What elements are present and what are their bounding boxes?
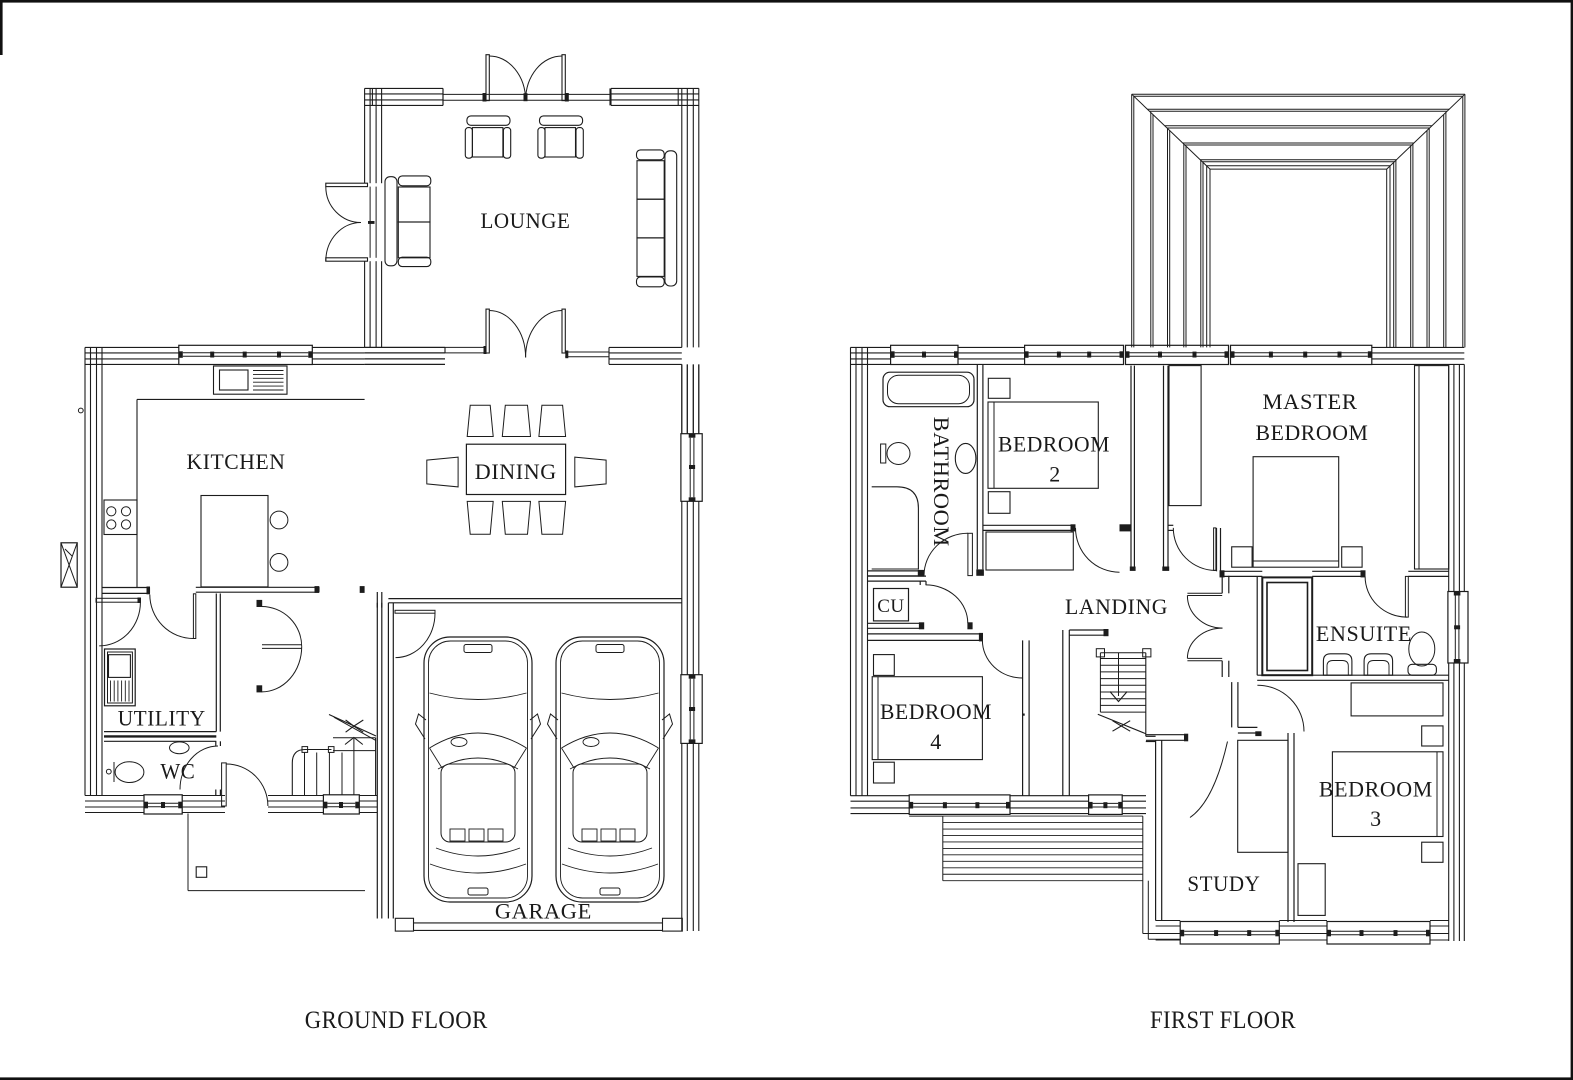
svg-text:BEDROOM: BEDROOM [1319,777,1433,802]
svg-text:KITCHEN: KITCHEN [187,449,286,474]
svg-text:LANDING: LANDING [1065,594,1168,619]
svg-text:MASTER: MASTER [1263,389,1358,414]
svg-text:GROUND FLOOR: GROUND FLOOR [305,1007,488,1034]
svg-text:STUDY: STUDY [1187,871,1260,896]
svg-text:DINING: DINING [475,459,557,484]
svg-text:WC: WC [160,759,195,784]
svg-text:UTILITY: UTILITY [118,706,206,731]
svg-text:CU: CU [877,596,904,617]
svg-text:BEDROOM: BEDROOM [998,432,1110,457]
svg-text:3: 3 [1370,806,1382,831]
svg-text:BEDROOM: BEDROOM [880,699,992,724]
svg-text:ENSUITE: ENSUITE [1316,621,1412,646]
svg-text:LOUNGE: LOUNGE [481,208,571,233]
svg-text:4: 4 [930,729,942,754]
svg-text:BATHROOM: BATHROOM [929,417,954,547]
svg-text:BEDROOM: BEDROOM [1256,420,1369,445]
svg-text:FIRST FLOOR: FIRST FLOOR [1150,1007,1296,1034]
svg-text:2: 2 [1049,462,1061,487]
